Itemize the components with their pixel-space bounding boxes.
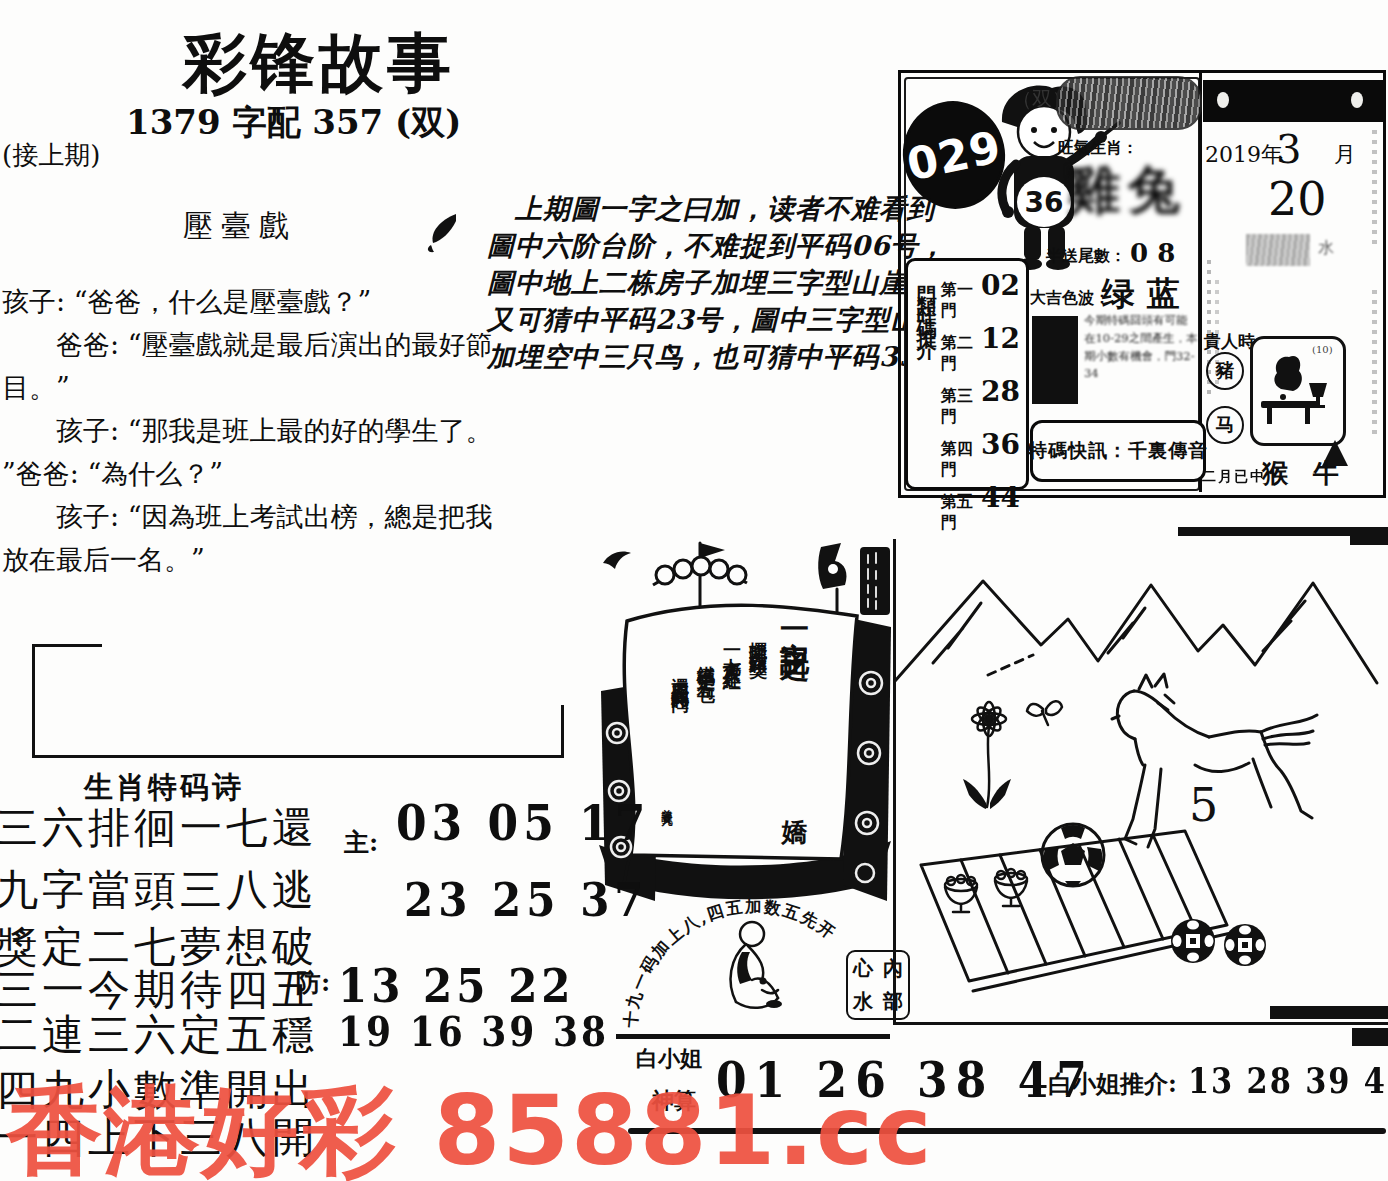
gates-header: 門類旺碼推介 xyxy=(914,269,941,479)
divider-line xyxy=(616,1034,890,1039)
fang-label: 防: xyxy=(296,966,330,999)
tail-label: 半送尾數： xyxy=(1046,246,1126,267)
gate-number: 02 xyxy=(981,269,1020,302)
stamp-char: 心 xyxy=(853,955,873,982)
story-title: 壓臺戲 xyxy=(183,206,297,247)
continued-note: (接上期) xyxy=(2,138,100,173)
gate-label: 第四門 xyxy=(941,439,978,481)
watermark-text: 香港好彩 85881.cc xyxy=(6,1068,934,1181)
calendar-pic-note: (10) xyxy=(1312,344,1333,355)
arc-text: 十九一码加上八,四五加数五先开 xyxy=(621,897,840,1028)
boy-number: 36 xyxy=(1025,186,1064,219)
sail-verse-column: 鐵碼定了二五包 xyxy=(694,652,718,673)
zodiac-horse-char: 马 xyxy=(1216,412,1235,438)
gate-row: 第一門 02 xyxy=(941,269,1020,322)
gate-row: 第四門 36 xyxy=(941,428,1020,481)
sail-headline: 一字記之日： xyxy=(775,614,815,667)
gate-label: 第一門 xyxy=(941,280,978,322)
story-text: 孩子: “爸爸，什么是壓臺戲？” 爸爸: “壓臺戲就是最后演出的最好節 目。” … xyxy=(2,280,482,581)
sail-verse-column: 擺明三六作頭獎 xyxy=(746,628,770,649)
lady-rec-numbers: 13 28 39 41 46 xyxy=(1188,1060,1388,1102)
calendar-footer-animals: 猴 牛 xyxy=(1262,456,1347,491)
calendar-smudge-char: 水 xyxy=(1318,238,1334,259)
calendar-year: 2019年 xyxy=(1205,140,1283,170)
color-wave-value: 绿 蓝 xyxy=(1102,272,1180,317)
story-line: 爸爸: “壓臺戲就是最后演出的最好節 xyxy=(2,323,482,366)
notice-photo-block xyxy=(1032,316,1078,404)
gate-row: 第三門 28 xyxy=(941,375,1020,428)
analysis-text: 上期圖一字之曰加，读者不难看到 圖中六阶台阶，不难捉到平码06号， 圖中地上二栋… xyxy=(487,190,907,375)
story-line: 孩子: “因為班上考試出榜，總是把我 xyxy=(2,495,482,538)
gates-box: 門類旺碼推介 第一門 02 第二門 12 第三門 28 第四門 36 第五門 4… xyxy=(905,258,1029,490)
gate-number: 28 xyxy=(981,375,1020,408)
binder-hole xyxy=(1217,92,1229,108)
svg-text:十九一码加上八,四五加数五先开: 十九一码加上八,四五加数五先开 xyxy=(621,897,840,1028)
empty-frame-right xyxy=(561,705,564,758)
analysis-line: 圖中地上二栋房子加埋三字型山崖， xyxy=(487,264,907,301)
special-news-box: 特碼快訊：千裏傳音 xyxy=(1030,420,1206,482)
calendar-edge-strip xyxy=(1372,130,1377,250)
special-news-text: 特碼快訊：千裏傳音 xyxy=(1028,438,1208,464)
analysis-line: 上期圖一字之曰加，读者不难看到 xyxy=(487,190,907,227)
calendar-binder-bar xyxy=(1203,80,1385,122)
poem-verse: 三六排徊一七還 xyxy=(0,800,318,856)
stamp-char: 水 xyxy=(853,988,873,1015)
color-wave-label: 大吉色波： xyxy=(1030,288,1110,309)
empty-frame-bottom xyxy=(32,755,564,758)
calendar-month: 3 xyxy=(1276,126,1301,172)
empty-frame-top xyxy=(32,644,102,647)
fang-numbers: 13 25 22 xyxy=(338,958,575,1013)
binder-hole xyxy=(1351,92,1363,108)
empty-frame-left xyxy=(32,644,35,758)
poem-verse: 九字當頭三八逃 xyxy=(0,862,318,918)
calendar-month-unit: 月 xyxy=(1334,140,1356,170)
sail-signature: 曾謹女凡 xyxy=(658,800,673,808)
sail-verse-column: 一七齊攻八走紅 xyxy=(720,640,744,661)
sail-verse-column: 還差四九轉旺門 xyxy=(668,664,692,685)
scene-frame-step xyxy=(1352,1028,1388,1046)
notice-text: 今期特碼回頭有可能在10-29之間產生，本期小數有機會，門32-34 xyxy=(1084,312,1198,412)
horse-number: 5 xyxy=(1189,778,1218,832)
noble-hour-label: 貴人時 xyxy=(1204,330,1255,353)
poem-verse: 二連三六定五穩 xyxy=(0,1007,318,1063)
gate-row: 第五門 44 xyxy=(941,481,1020,534)
calendar-footer-script: 二月已中 xyxy=(1202,468,1266,486)
lady-rec-label: 白小姐推介: xyxy=(1048,1068,1177,1100)
analysis-line: 加埋空中三只鸟，也可猜中平码33号。 xyxy=(487,338,907,375)
gate-number: 12 xyxy=(981,322,1020,355)
tail-value: 0 8 xyxy=(1130,238,1175,268)
gate-number: 44 xyxy=(981,481,1020,514)
gates-rows: 第一門 02 第二門 12 第三門 28 第四門 36 第五門 44 xyxy=(941,269,1020,479)
row4-numbers: 19 16 39 38 xyxy=(338,1008,609,1055)
analysis-line: 圖中六阶台阶，不难捉到平码06号， xyxy=(487,227,907,264)
gate-label: 第五門 xyxy=(941,492,978,534)
gate-number: 36 xyxy=(981,428,1020,461)
zhu-label: 主: xyxy=(344,826,378,859)
page-subtitle: 1379 字配 357 (双) xyxy=(126,100,461,146)
quill-icon xyxy=(424,212,460,254)
coin-icon xyxy=(1224,924,1266,966)
analysis-line: 又可猜中平码23号，圖中三字型山崖 xyxy=(487,301,907,338)
calendar-edge-strip xyxy=(1372,290,1377,440)
stamp-banner xyxy=(1056,76,1202,130)
coin-icon xyxy=(1171,919,1215,963)
zhu-numbers: 03 05 17 xyxy=(396,794,650,851)
story-line: 孩子: “那我是班上最的好的學生了。 xyxy=(2,409,482,452)
gate-row: 第二門 12 xyxy=(941,322,1020,375)
zodiac-art: 雞兔 xyxy=(1068,156,1188,226)
calendar-day: 20 xyxy=(1268,172,1327,226)
row2-numbers: 23 25 37 xyxy=(404,872,649,927)
zodiac-circle-horse: 马 xyxy=(1206,406,1244,444)
scene-drawing: 5 xyxy=(893,533,1387,1019)
story-line: ”爸爸: “為什么？” xyxy=(2,452,482,495)
page-title: 彩锋故事 xyxy=(183,20,455,107)
story-line: 目。” xyxy=(2,366,482,409)
gate-label: 第三門 xyxy=(941,386,978,428)
calendar-smudge-block xyxy=(1246,234,1310,266)
gate-label: 第二門 xyxy=(941,333,978,375)
zodiac-pig-char: 豬 xyxy=(1216,358,1235,384)
zodiac-circle-pig: 豬 xyxy=(1206,352,1244,390)
story-line: 孩子: “爸爸，什么是壓臺戲？” xyxy=(2,280,482,323)
story-line: 放在最后一名。” xyxy=(2,538,482,581)
lottery-tip-sheet: { "watermark": {"text": "香港好彩 85881.cc",… xyxy=(0,0,1388,1181)
